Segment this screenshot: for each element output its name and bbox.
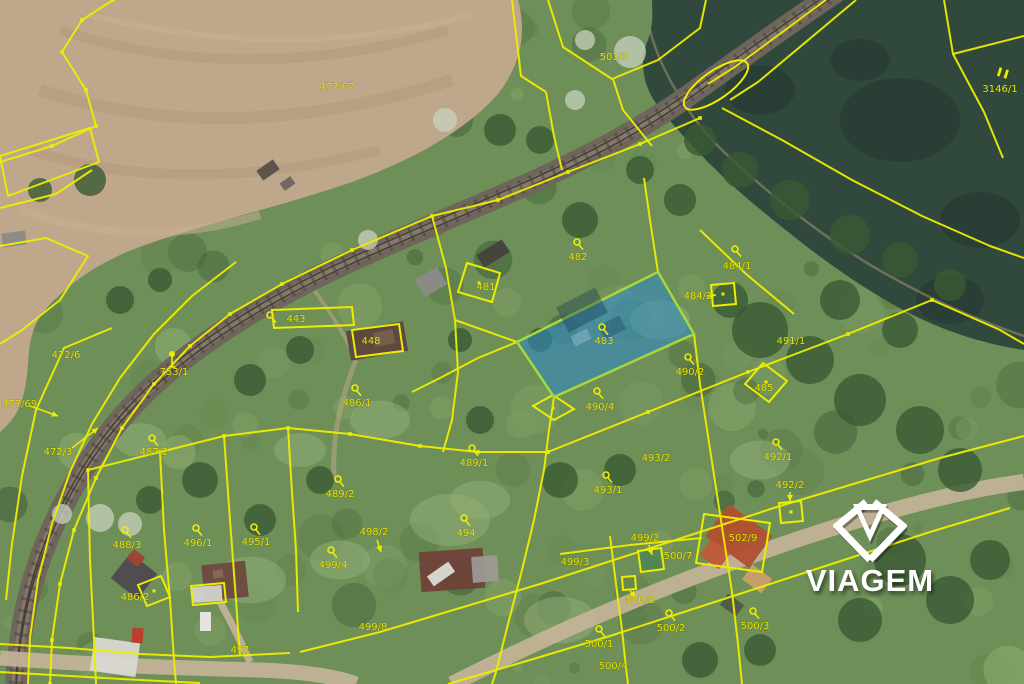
parcel-label-490/4: 490/4 (586, 402, 615, 413)
cadastral-map-svg: 477/67503/33146/1482481484/1484/24834434… (0, 0, 1024, 684)
parcel-label-477/69: 477/69 (2, 399, 37, 410)
parcel-label-448: 448 (361, 336, 380, 347)
parcel-label-499/3: 499/3 (561, 557, 590, 568)
parcel-label-753/1: 753/1 (160, 367, 189, 378)
aerial-map-canvas: 477/67503/33146/1482481484/1484/24834434… (0, 0, 1024, 684)
parcel-label-500/8: 500/8 (626, 595, 655, 606)
parcel-label-492/2: 492/2 (776, 480, 805, 491)
parcel-label-498/2: 498/2 (360, 527, 389, 538)
parcel-label-487/2: 487/2 (140, 447, 169, 458)
parcel-label-472/6: 472/6 (52, 350, 81, 361)
parcel-label-489/1: 489/1 (460, 458, 489, 469)
parcel-label-500/2: 500/2 (657, 623, 686, 634)
parcel-label-500/4: 500/4 (599, 661, 628, 672)
parcel-label-496/1: 496/1 (184, 538, 213, 549)
parcel-label-499/2: 499/2 (631, 533, 660, 544)
parcel-label-490/2: 490/2 (676, 367, 705, 378)
parcel-label-499/8: 499/8 (359, 622, 388, 633)
parcel-label-500/3: 500/3 (741, 621, 770, 632)
parcel-label-477/67: 477/67 (319, 82, 354, 93)
parcel-label-497: 497 (230, 645, 249, 656)
parcel-label-488/3: 488/3 (113, 540, 142, 551)
parcel-label-492/1: 492/1 (764, 452, 793, 463)
parcel-label-491/1: 491/1 (777, 336, 806, 347)
parcel-label-486/2: 486/2 (121, 592, 150, 603)
parcel-label-443: 443 (286, 314, 305, 325)
parcel-label-502/9: 502/9 (729, 533, 758, 544)
parcel-label-493/2: 493/2 (642, 453, 671, 464)
parcel-label-494: 494 (456, 528, 475, 539)
parcel-label-481: 481 (476, 282, 495, 293)
parcel-label-3146/1: 3146/1 (982, 84, 1017, 95)
parcel-label-503/3: 503/3 (600, 52, 629, 63)
parcel-label-483: 483 (594, 336, 613, 347)
parcel-label-495/1: 495/1 (242, 537, 271, 548)
parcel-label-500/1: 500/1 (585, 639, 614, 650)
parcel-label-493/1: 493/1 (594, 485, 623, 496)
parcel-label-485: 485 (754, 383, 773, 394)
parcel-label-482: 482 (568, 252, 587, 263)
parcel-label-486/1: 486/1 (343, 398, 372, 409)
parcel-label-489/2: 489/2 (326, 489, 355, 500)
parcel-label-500/7: 500/7 (664, 551, 693, 562)
cadastral-map-view[interactable]: 477/67503/33146/1482481484/1484/24834434… (0, 0, 1024, 684)
parcel-label-499/4: 499/4 (319, 560, 348, 571)
parcel-label-484/1: 484/1 (723, 261, 752, 272)
parcel-label-472/3: 472/3 (44, 447, 73, 458)
parcel-label-484/2: 484/2 (684, 291, 713, 302)
